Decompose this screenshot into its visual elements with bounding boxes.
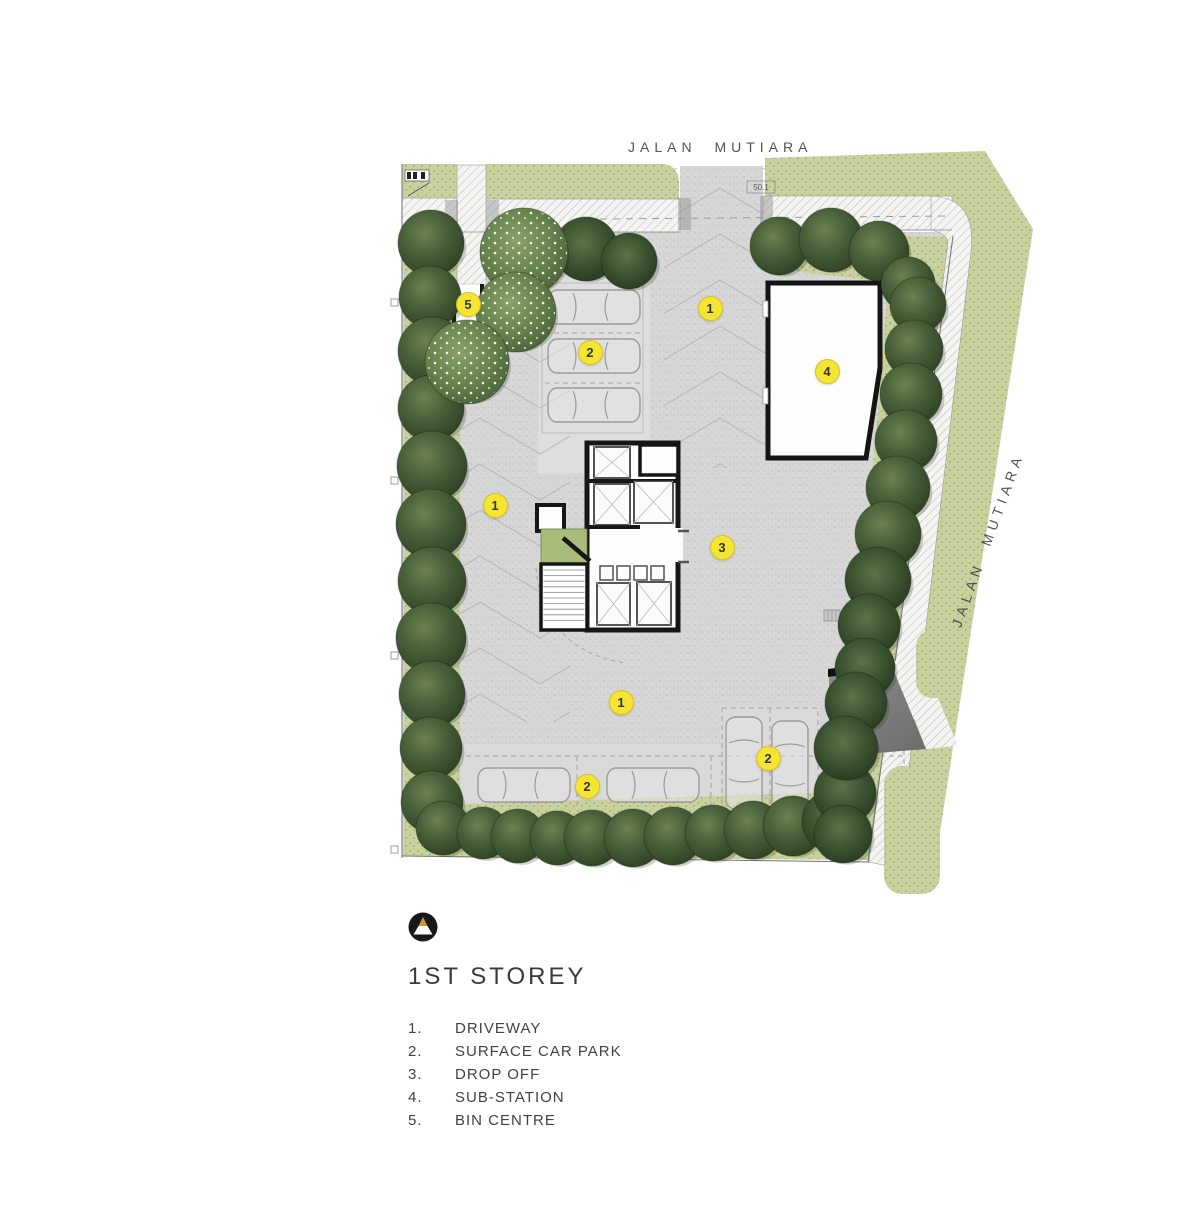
road-label-jalan-mutiara-top: JALAN MUTIARA (628, 139, 808, 155)
dimension-label: 50.1 (753, 183, 769, 192)
legend-row: 4.SUB-STATION (408, 1086, 622, 1109)
tree-spiky (814, 716, 878, 780)
site-plan-page: 50.1 JALAN MUTIARA JALAN MUTIARA 5214131… (0, 0, 1199, 1213)
car-outline (548, 388, 640, 422)
tree-spiky (814, 805, 872, 863)
side-room (537, 505, 564, 531)
legend-row: 1.DRIVEWAY (408, 1017, 622, 1040)
legend-item-number: 2. (408, 1043, 455, 1060)
substation-building (763, 283, 880, 458)
plan-title: 1ST STOREY (408, 963, 622, 991)
lobby-opening (674, 528, 683, 562)
car-outline (548, 290, 640, 324)
legend-item-label: SURFACE CAR PARK (455, 1043, 622, 1060)
legend-item-label: DRIVEWAY (455, 1020, 541, 1037)
legend-item-number: 5. (408, 1112, 455, 1129)
legend-item-label: DROP OFF (455, 1066, 540, 1083)
drain-grate (824, 610, 840, 621)
legend-item-number: 3. (408, 1066, 455, 1083)
legend-item-label: SUB-STATION (455, 1089, 565, 1106)
legend-item-label: BIN CENTRE (455, 1112, 556, 1129)
legend-item-number: 1. (408, 1020, 455, 1037)
tree-spiky (601, 233, 657, 289)
tree-dark (400, 717, 462, 779)
tree-blossom-dots (426, 321, 508, 403)
car-outline (726, 717, 762, 809)
boundary-ticks (391, 299, 398, 853)
legend-rows: 1.DRIVEWAY2.SURFACE CAR PARK3.DROP OFF4.… (408, 1017, 622, 1132)
legend-item-number: 4. (408, 1089, 455, 1106)
legend-row: 5.BIN CENTRE (408, 1109, 622, 1132)
legend: 1ST STOREY 1.DRIVEWAY2.SURFACE CAR PARK3… (408, 912, 622, 1132)
car-outline (607, 768, 699, 802)
planter-patch (541, 529, 587, 564)
car-outline (548, 339, 640, 373)
legend-row: 2.SURFACE CAR PARK (408, 1040, 622, 1063)
car-outline (478, 768, 570, 802)
architect-logo (408, 912, 438, 942)
legend-row: 3.DROP OFF (408, 1063, 622, 1086)
